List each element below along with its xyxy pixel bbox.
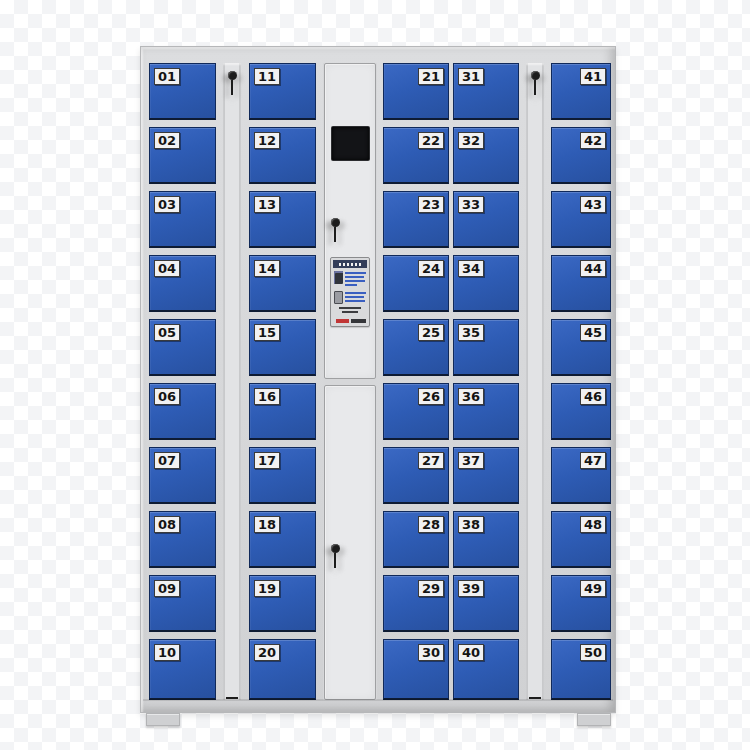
locker-door-49[interactable]: 49 [551,575,611,632]
hanging-key [334,553,336,568]
locker-door-34[interactable]: 34 [453,255,519,312]
locker-door-43[interactable]: 43 [551,191,611,248]
door-number-label: 11 [254,68,280,85]
door-number-label: 43 [580,196,606,213]
lock-cylinder [228,71,237,80]
locker-door-44[interactable]: 44 [551,255,611,312]
door-number-label: 50 [580,644,606,661]
locker-door-35[interactable]: 35 [453,319,519,376]
locker-door-32[interactable]: 32 [453,127,519,184]
door-number-label: 21 [418,68,444,85]
locker-door-24[interactable]: 24 [383,255,449,312]
door-number-label: 34 [458,260,484,277]
lock-cylinder [331,218,340,227]
door-number-label: 32 [458,132,484,149]
locker-door-04[interactable]: 04 [149,255,216,312]
cabinet-foot-left [146,713,180,726]
locker-door-20[interactable]: 20 [249,639,316,700]
door-number-label: 12 [254,132,280,149]
door-number-label: 29 [418,580,444,597]
hanging-key [334,227,336,242]
locker-door-45[interactable]: 45 [551,319,611,376]
locker-door-14[interactable]: 14 [249,255,316,312]
door-number-label: 28 [418,516,444,533]
door-number-label: 30 [418,644,444,661]
locker-door-05[interactable]: 05 [149,319,216,376]
sticker-text-lines [345,291,366,304]
locker-door-30[interactable]: 30 [383,639,449,700]
door-number-label: 10 [154,644,180,661]
door-number-label: 31 [458,68,484,85]
locker-door-06[interactable]: 06 [149,383,216,440]
control-panel-upper-door[interactable] [324,63,376,379]
door-number-label: 23 [418,196,444,213]
door-number-label: 13 [254,196,280,213]
locker-door-40[interactable]: 40 [453,639,519,700]
door-number-label: 41 [580,68,606,85]
locker-door-03[interactable]: 03 [149,191,216,248]
locker-door-15[interactable]: 15 [249,319,316,376]
sticker-step-2 [334,291,366,304]
locker-door-47[interactable]: 47 [551,447,611,504]
locker-cabinet: 01020304050607080910 1112131415161718192… [140,46,616,713]
control-panel [323,63,377,700]
locker-door-26[interactable]: 26 [383,383,449,440]
locker-door-31[interactable]: 31 [453,63,519,120]
sticker-text-lines [345,271,366,288]
control-panel-lower-door[interactable] [324,385,376,700]
door-number-label: 40 [458,644,484,661]
locker-door-22[interactable]: 22 [383,127,449,184]
hanging-key [231,80,233,95]
locker-door-18[interactable]: 18 [249,511,316,568]
locker-door-33[interactable]: 33 [453,191,519,248]
locker-door-23[interactable]: 23 [383,191,449,248]
door-number-label: 09 [154,580,180,597]
door-number-label: 14 [254,260,280,277]
display-screen[interactable] [332,127,369,160]
key-icon[interactable] [225,71,239,95]
locker-door-13[interactable]: 13 [249,191,316,248]
door-number-label: 24 [418,260,444,277]
door-number-label: 49 [580,580,606,597]
door-number-label: 08 [154,516,180,533]
locker-column-2: 11121314151617181920 [249,63,316,700]
locker-column-3: 21222324252627282930 [383,63,449,700]
key-strip-left [223,63,241,700]
locker-door-39[interactable]: 39 [453,575,519,632]
locker-door-07[interactable]: 07 [149,447,216,504]
sticker-footer-bar [351,319,366,323]
door-number-label: 02 [154,132,180,149]
locker-door-46[interactable]: 46 [551,383,611,440]
locker-column-1: 01020304050607080910 [149,63,216,700]
locker-door-48[interactable]: 48 [551,511,611,568]
door-number-label: 35 [458,324,484,341]
locker-door-28[interactable]: 28 [383,511,449,568]
locker-door-12[interactable]: 12 [249,127,316,184]
instruction-sticker [330,257,370,327]
door-number-label: 48 [580,516,606,533]
locker-door-11[interactable]: 11 [249,63,316,120]
locker-door-50[interactable]: 50 [551,639,611,700]
locker-door-16[interactable]: 16 [249,383,316,440]
locker-door-41[interactable]: 41 [551,63,611,120]
door-number-label: 05 [154,324,180,341]
sticker-title-bar [333,260,367,268]
locker-door-09[interactable]: 09 [149,575,216,632]
door-number-label: 33 [458,196,484,213]
door-number-label: 39 [458,580,484,597]
sticker-footer-lines [331,307,369,313]
barcode-icon [334,271,343,284]
lock-cylinder [331,544,340,553]
lock-cylinder [531,71,540,80]
locker-door-21[interactable]: 21 [383,63,449,120]
locker-column-4: 31323334353637383940 [453,63,519,700]
locker-door-42[interactable]: 42 [551,127,611,184]
locker-door-38[interactable]: 38 [453,511,519,568]
door-number-label: 38 [458,516,484,533]
locker-door-10[interactable]: 10 [149,639,216,700]
door-number-label: 16 [254,388,280,405]
door-number-label: 36 [458,388,484,405]
locker-door-17[interactable]: 17 [249,447,316,504]
door-number-label: 27 [418,452,444,469]
locker-column-5: 41424344454647484950 [551,63,611,700]
door-number-label: 17 [254,452,280,469]
door-number-label: 42 [580,132,606,149]
key-icon[interactable] [328,218,342,242]
door-number-label: 26 [418,388,444,405]
door-number-label: 18 [254,516,280,533]
sticker-red-accent [336,319,349,323]
door-number-label: 03 [154,196,180,213]
locker-door-36[interactable]: 36 [453,383,519,440]
door-number-label: 45 [580,324,606,341]
door-number-label: 15 [254,324,280,341]
locker-door-08[interactable]: 08 [149,511,216,568]
locker-door-27[interactable]: 27 [383,447,449,504]
door-number-label: 25 [418,324,444,341]
door-number-label: 22 [418,132,444,149]
cabinet-foot-right [577,713,611,726]
door-number-label: 44 [580,260,606,277]
locker-door-01[interactable]: 01 [149,63,216,120]
photo-background: 01020304050607080910 1112131415161718192… [0,0,750,750]
hanging-key [534,80,536,95]
door-number-label: 07 [154,452,180,469]
door-number-label: 01 [154,68,180,85]
locker-door-29[interactable]: 29 [383,575,449,632]
sticker-step-1 [334,271,366,288]
key-strip-right [526,63,544,700]
door-number-label: 47 [580,452,606,469]
locker-door-icon [334,291,343,304]
key-icon[interactable] [328,544,342,568]
door-number-label: 37 [458,452,484,469]
cabinet-base-seam [143,699,613,701]
key-icon[interactable] [528,71,542,95]
door-number-label: 04 [154,260,180,277]
door-number-label: 19 [254,580,280,597]
door-number-label: 20 [254,644,280,661]
locker-door-02[interactable]: 02 [149,127,216,184]
door-number-label: 46 [580,388,606,405]
door-number-label: 06 [154,388,180,405]
locker-door-25[interactable]: 25 [383,319,449,376]
locker-door-19[interactable]: 19 [249,575,316,632]
locker-door-37[interactable]: 37 [453,447,519,504]
